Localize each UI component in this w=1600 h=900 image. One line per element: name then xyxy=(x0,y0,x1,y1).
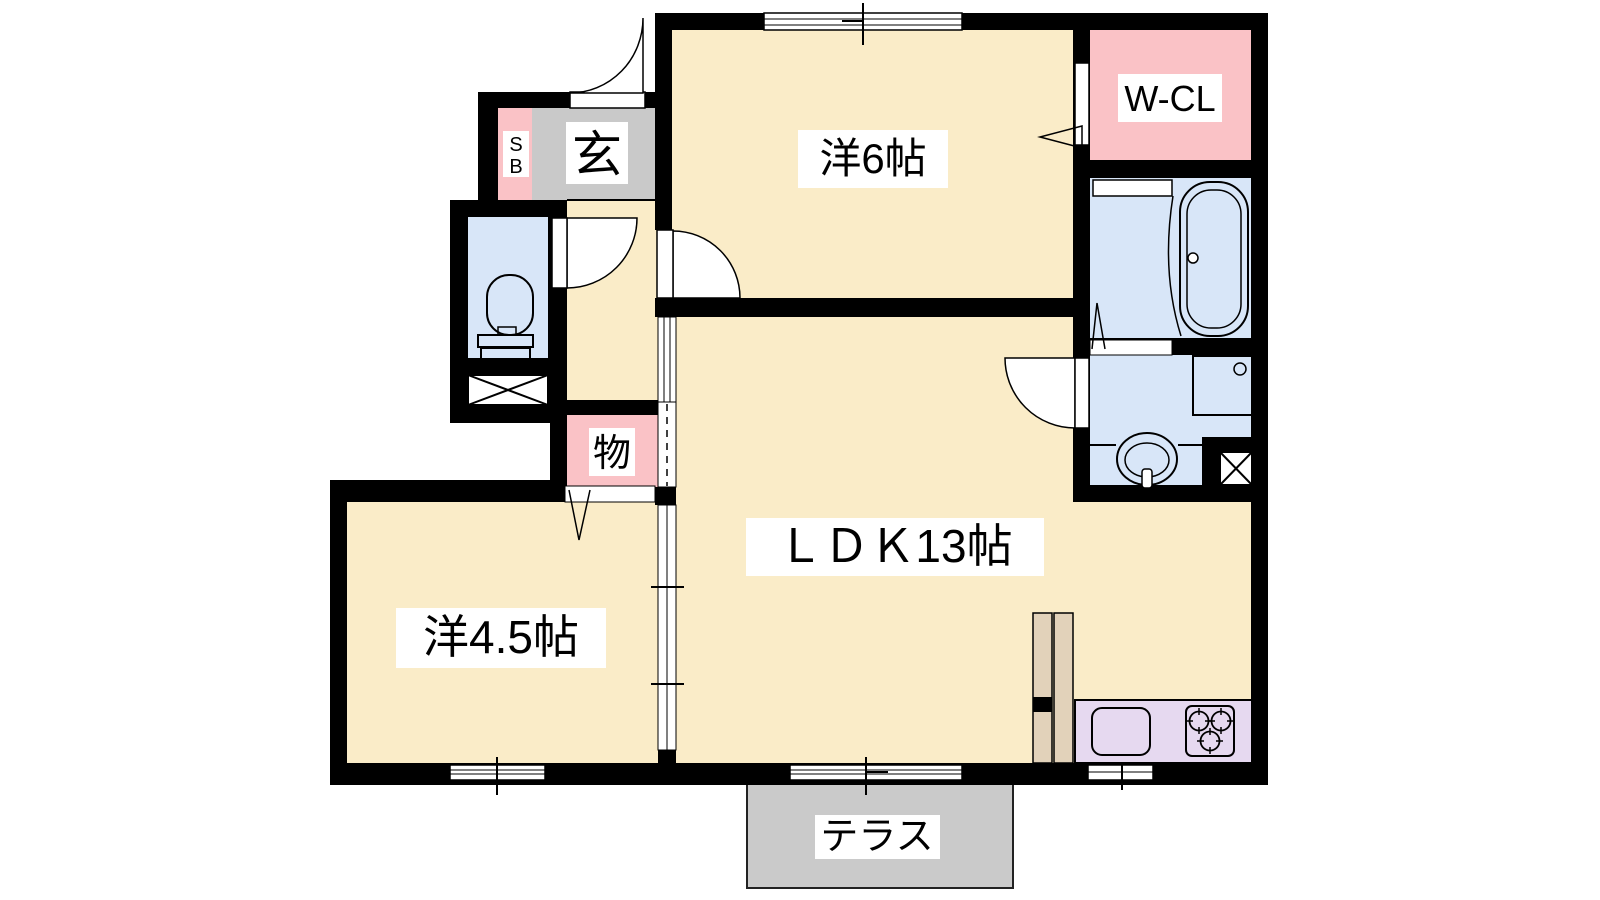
wall xyxy=(478,92,498,200)
bath-counter xyxy=(1093,180,1172,196)
room-toilet xyxy=(468,217,548,358)
door-opening xyxy=(1090,340,1172,355)
label-bedroom6: 洋6帖 xyxy=(798,130,948,188)
wall xyxy=(330,480,565,502)
label-ldk: ＬＤＫ13帖 xyxy=(746,518,1044,576)
wall xyxy=(1073,485,1268,502)
kitchen-counter xyxy=(1075,700,1252,763)
bathtub-drain xyxy=(1188,253,1198,263)
wall xyxy=(1251,13,1268,785)
wall xyxy=(450,405,567,423)
shoebox-label: S xyxy=(509,134,522,156)
room-label: 洋4.5帖 xyxy=(423,611,579,663)
wall xyxy=(1202,437,1220,502)
room-bathroom xyxy=(1090,178,1252,338)
label-storage: 物 xyxy=(589,428,635,476)
pipe-space-washroom xyxy=(1220,452,1252,485)
label-bedroom45: 洋4.5帖 xyxy=(396,608,606,668)
room-label: 洋6帖 xyxy=(819,135,926,182)
room-label: W-CL xyxy=(1124,78,1215,119)
room-label: テラス xyxy=(820,816,933,858)
wall xyxy=(655,487,676,505)
wall xyxy=(450,200,468,423)
refrigerator-space xyxy=(1054,613,1073,763)
label-wcl: W-CL xyxy=(1118,74,1222,122)
refrigerator-space xyxy=(1033,613,1052,763)
door-leaf xyxy=(552,218,567,288)
cabinet-notch xyxy=(1033,697,1052,712)
wall xyxy=(330,480,347,785)
wall xyxy=(658,750,676,763)
pipe-space-toilet xyxy=(468,375,548,405)
wall xyxy=(1220,437,1268,452)
door-leaf xyxy=(657,230,673,298)
label-terrace: テラス xyxy=(815,815,940,859)
floor-plan-drawing: 洋6帖 W-CL ＬＤＫ13帖 洋4.5帖 物 玄 S B テラス xyxy=(0,0,1600,900)
wall xyxy=(655,13,672,230)
hallway-ldk-sliding-door xyxy=(658,317,676,487)
door-opening xyxy=(565,486,655,502)
room-label: ＬＤＫ13帖 xyxy=(777,520,1012,572)
room-label: 玄 xyxy=(572,127,622,183)
washbasin-tap xyxy=(1142,469,1152,488)
room-label: 物 xyxy=(593,433,631,475)
door-leaf xyxy=(1075,358,1089,428)
wall xyxy=(1090,160,1268,178)
label-shoebox: S B xyxy=(503,131,529,178)
sliding-door-panel xyxy=(658,317,676,402)
label-entrance: 玄 xyxy=(566,122,628,184)
floor-plan-page: 洋6帖 W-CL ＬＤＫ13帖 洋4.5帖 物 玄 S B テラス xyxy=(0,0,1600,900)
door-opening xyxy=(570,92,645,108)
washing-machine-drain xyxy=(1234,363,1246,375)
wall xyxy=(550,400,676,415)
shoebox-label: B xyxy=(509,156,522,178)
wall xyxy=(655,298,1090,317)
entrance-door xyxy=(570,18,645,108)
door-swing-arc xyxy=(570,18,643,93)
